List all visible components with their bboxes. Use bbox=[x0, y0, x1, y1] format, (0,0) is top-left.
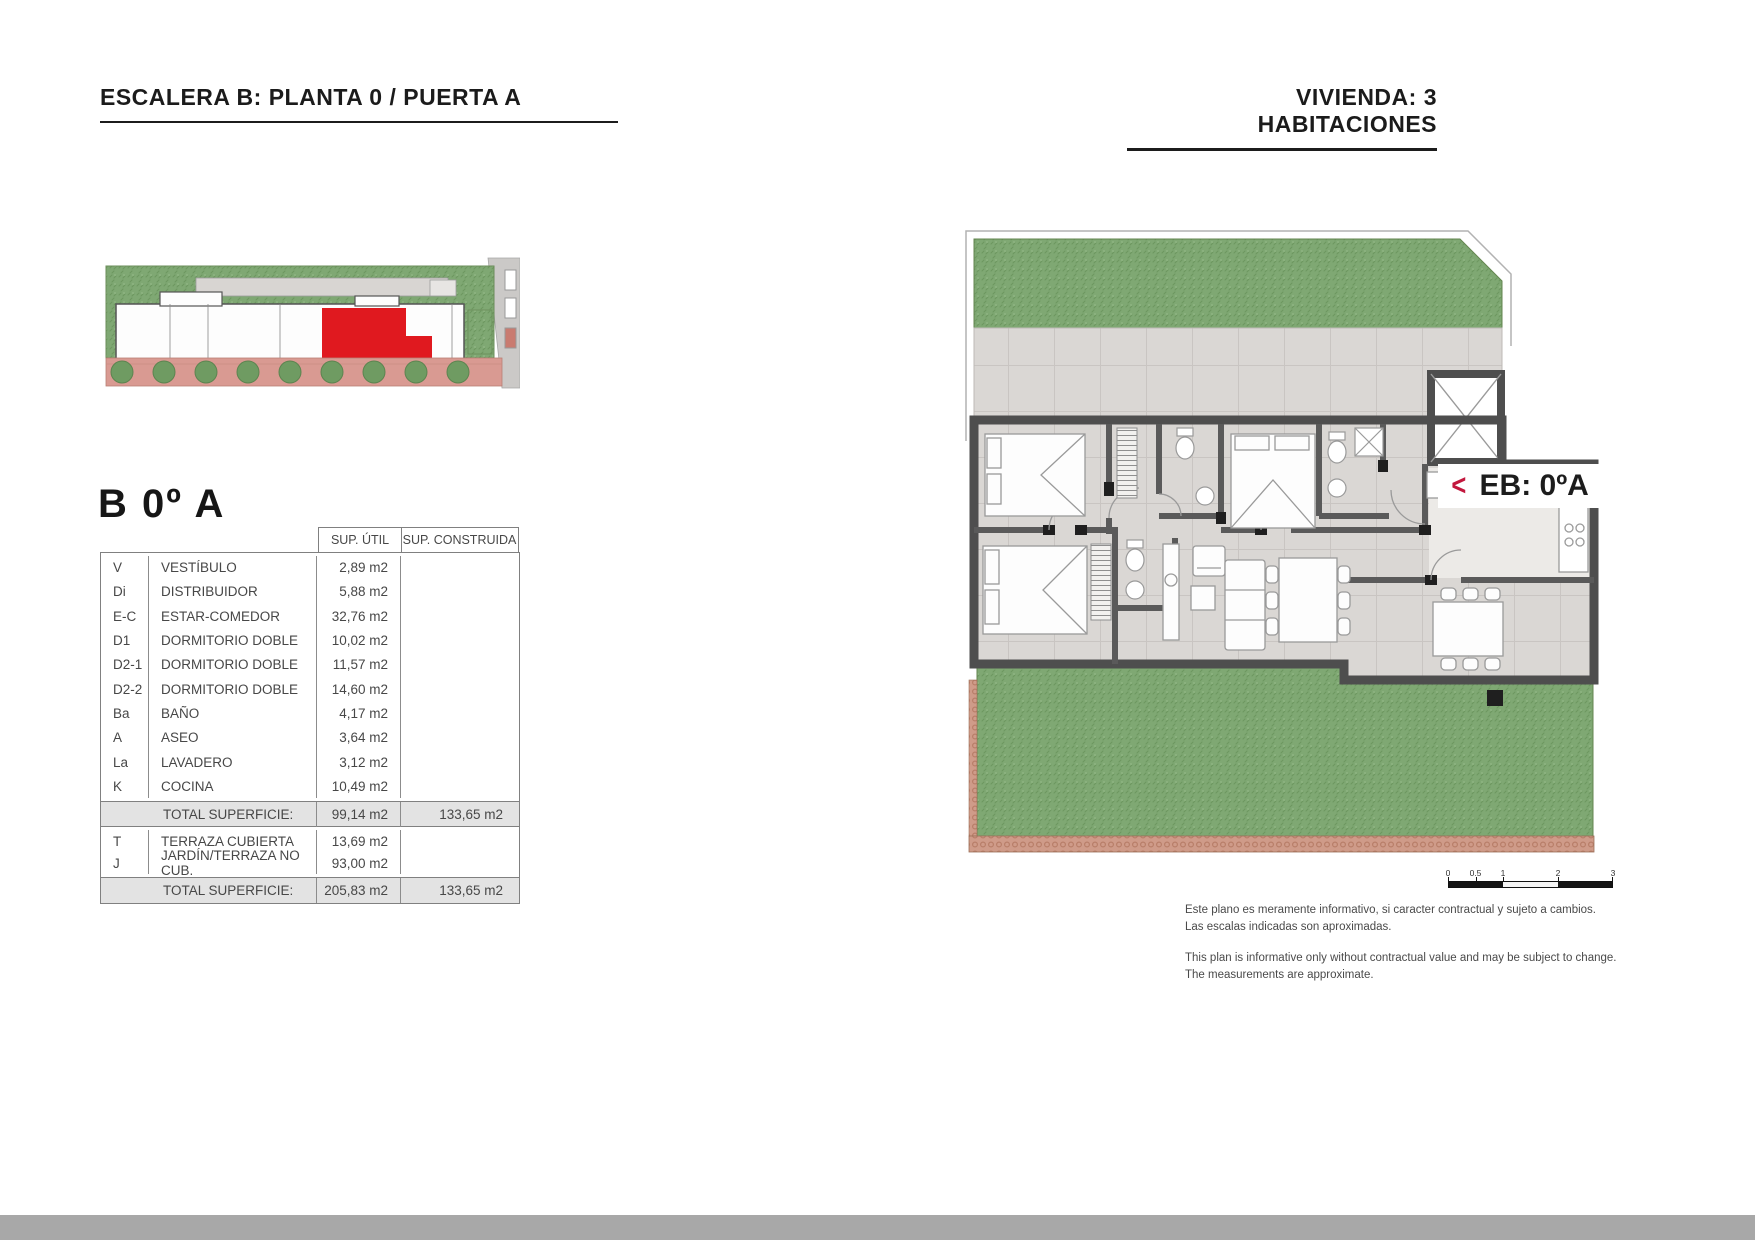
table-row: D2-2DORMITORIO DOBLE14,60 m2 bbox=[101, 677, 519, 701]
table-row: DiDISTRIBUIDOR5,88 m2 bbox=[101, 580, 519, 604]
column-header-sup-util: SUP. ÚTIL bbox=[318, 527, 402, 553]
dining-table bbox=[1279, 558, 1337, 642]
disclaimer-es: Este plano es meramente informativo, si … bbox=[1185, 902, 1617, 935]
footer-band bbox=[0, 1215, 1755, 1240]
page-title-left: ESCALERA B: PLANTA 0 / PUERTA A bbox=[100, 84, 618, 123]
garden-top bbox=[974, 239, 1502, 328]
terrace-table bbox=[1433, 588, 1503, 670]
room-rows: VVESTÍBULO2,89 m2 DiDISTRIBUIDOR5,88 m2 … bbox=[100, 552, 520, 803]
brick-border bbox=[969, 836, 1594, 852]
table-row: AASEO3,64 m2 bbox=[101, 726, 519, 750]
table-header: SUP. ÚTIL SUP. CONSTRUIDA bbox=[318, 527, 520, 553]
wardrobe bbox=[1117, 428, 1137, 498]
total-row: TOTAL SUPERFICIE: 205,83 m2 133,65 m2 bbox=[100, 877, 520, 904]
tree-row bbox=[111, 361, 469, 383]
table-row: D1DORMITORIO DOBLE10,02 m2 bbox=[101, 628, 519, 652]
area-table: SUP. ÚTIL SUP. CONSTRUIDA VVESTÍBULO2,89… bbox=[100, 527, 520, 904]
disclaimer: Este plano es meramente informativo, si … bbox=[1185, 902, 1617, 984]
table-row: E-CESTAR-COMEDOR32,76 m2 bbox=[101, 604, 519, 628]
terrace-walkway bbox=[974, 328, 1502, 420]
unit-plan-label: < EB: 0ºA bbox=[1438, 464, 1605, 508]
floor-plan bbox=[963, 228, 1613, 878]
table-row: JJARDÍN/TERRAZA NO CUB.93,00 m2 bbox=[101, 852, 519, 874]
table-row: BaBAÑO4,17 m2 bbox=[101, 701, 519, 725]
site-plan bbox=[100, 252, 520, 392]
unit-title: B 0º A bbox=[98, 482, 225, 527]
unit-plan-label-text: EB: 0ºA bbox=[1480, 469, 1589, 503]
disclaimer-en: This plan is informative only without co… bbox=[1185, 950, 1617, 983]
page-title-right: VIVIENDA: 3 HABITACIONES bbox=[1127, 84, 1437, 151]
scale-bar: 0 0.5 1 2 3 bbox=[1448, 868, 1613, 894]
subtotal-row: TOTAL SUPERFICIE: 99,14 m2 133,65 m2 bbox=[100, 801, 520, 828]
wardrobe bbox=[1091, 544, 1111, 620]
chevron-left-icon: < bbox=[1451, 469, 1466, 503]
scale-bar-segments bbox=[1448, 881, 1613, 888]
outdoor-rows: TTERRAZA CUBIERTA13,69 m2 JJARDÍN/TERRAZ… bbox=[100, 826, 520, 878]
table-row: KCOCINA10,49 m2 bbox=[101, 774, 519, 798]
column-header-sup-construida: SUP. CONSTRUIDA bbox=[401, 527, 519, 553]
table-row: VVESTÍBULO2,89 m2 bbox=[101, 556, 519, 580]
table-row: D2-1DORMITORIO DOBLE11,57 m2 bbox=[101, 653, 519, 677]
garden-bottom bbox=[977, 664, 1593, 836]
table-row: LaLAVADERO3,12 m2 bbox=[101, 750, 519, 774]
